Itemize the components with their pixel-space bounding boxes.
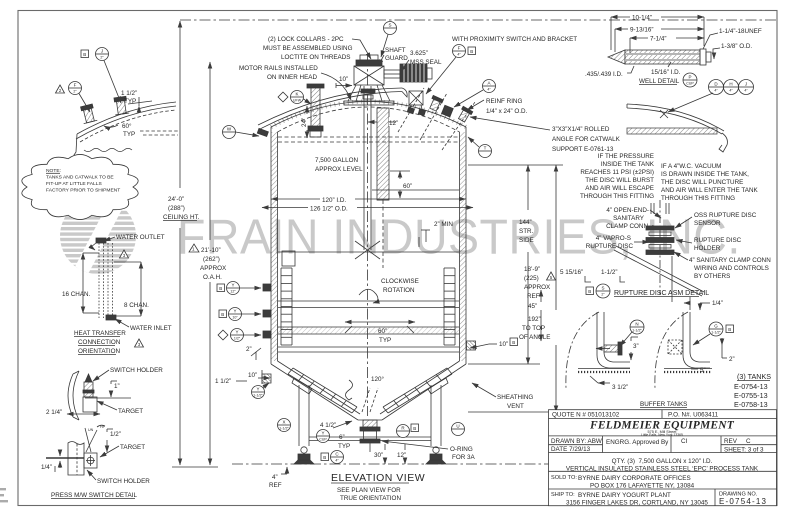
svg-text:WITH PROXIMITY SWITCH AND BRAC: WITH PROXIMITY SWITCH AND BRACKET — [452, 36, 577, 43]
svg-text:E-0755-13: E-0755-13 — [734, 391, 768, 400]
svg-text:18’-9”: 18’-9” — [524, 266, 540, 273]
svg-text:Y: Y — [235, 330, 238, 335]
svg-text:FACTORY PRIOR TO SHIPMENT: FACTORY PRIOR TO SHIPMENT — [46, 188, 120, 194]
svg-text:DRAWN BY: ABW: DRAWN BY: ABW — [551, 438, 602, 445]
svg-text:THE DISC WILL BURST: THE DISC WILL BURST — [585, 177, 654, 184]
svg-text:B: B — [470, 49, 473, 54]
svg-text:X: X — [282, 420, 285, 425]
svg-text:CLOCKWISE: CLOCKWISE — [381, 278, 419, 285]
svg-text:Y: Y — [231, 283, 234, 288]
svg-text:IF A 4”W.C. VACUUM: IF A 4”W.C. VACUUM — [661, 163, 721, 170]
svg-text:24’-0”: 24’-0” — [168, 196, 184, 203]
svg-text:10”: 10” — [339, 76, 348, 83]
svg-text:7,500 GALLON: 7,500 GALLON — [315, 157, 359, 164]
svg-text:B: B — [323, 455, 326, 460]
svg-text:120°: 120° — [371, 375, 385, 383]
svg-text:3”: 3” — [633, 343, 639, 350]
svg-text:3”X3”X1/4” ROLLED: 3”X3”X1/4” ROLLED — [552, 126, 610, 133]
svg-text:B: B — [413, 426, 416, 431]
svg-text:Little Falls, New York 13365: Little Falls, New York 13365 — [641, 433, 683, 437]
svg-text:60°: 60° — [122, 122, 132, 130]
svg-text:60”: 60” — [403, 183, 412, 190]
svg-text:2”: 2” — [729, 356, 735, 363]
svg-text:15/16” I.D.: 15/16” I.D. — [651, 69, 681, 76]
svg-text:RUPTURE DISC ASM DETAIL: RUPTURE DISC ASM DETAIL — [614, 290, 709, 297]
svg-text:E-0754-13: E-0754-13 — [719, 497, 767, 506]
svg-text:B: B — [221, 312, 224, 317]
svg-text:1”: 1” — [114, 383, 120, 390]
svg-text:T: T — [484, 146, 487, 151]
svg-text:B: B — [512, 340, 515, 345]
svg-text:SENSOR: SENSOR — [694, 220, 721, 227]
svg-text:SEE PLAN VIEW FOR: SEE PLAN VIEW FOR — [337, 487, 401, 494]
svg-text:144”: 144” — [519, 219, 532, 226]
svg-text:TANKS AND CATWALK TO BE: TANKS AND CATWALK TO BE — [46, 175, 114, 181]
svg-text:SHEATHING: SHEATHING — [497, 394, 533, 401]
svg-text:F: F — [458, 46, 461, 51]
svg-text:6”: 6” — [339, 434, 345, 441]
svg-text:1/2”: 1/2” — [234, 337, 241, 341]
svg-text:Y: Y — [233, 309, 236, 314]
svg-text:5”: 5” — [700, 367, 706, 374]
svg-text:.435/.439 I.D.: .435/.439 I.D. — [585, 71, 623, 78]
svg-text:AND AIR WILL ESCAPE: AND AIR WILL ESCAPE — [585, 185, 654, 192]
svg-text:U: U — [456, 424, 459, 429]
svg-text:ON INNER HEAD: ON INNER HEAD — [267, 74, 317, 81]
svg-text:1-1/2”: 1-1/2” — [711, 331, 721, 335]
svg-text:A: A — [487, 81, 490, 86]
svg-text:B: B — [728, 327, 731, 332]
svg-text:J: J — [745, 82, 747, 87]
svg-text:24”: 24” — [301, 118, 308, 127]
svg-text:H: H — [729, 82, 732, 87]
svg-text:THROUGH THIS FITTING: THROUGH THIS FITTING — [661, 195, 735, 202]
svg-text:APPROX: APPROX — [200, 265, 227, 272]
svg-text:SHIP TO:: SHIP TO: — [551, 492, 575, 498]
svg-text:HOLDER: HOLDER — [694, 245, 721, 252]
svg-text:APPROX LEVEL: APPROX LEVEL — [315, 166, 363, 173]
svg-text:MOTOR RAILS INSTALLED: MOTOR RAILS INSTALLED — [239, 65, 318, 72]
svg-text:CONNECTION: CONNECTION — [78, 339, 121, 346]
svg-text:LOCTITE ON THREADS: LOCTITE ON THREADS — [281, 54, 351, 61]
svg-text:(225): (225) — [524, 275, 539, 282]
svg-text:STR.: STR. — [519, 228, 534, 235]
svg-text:P: P — [688, 75, 691, 80]
svg-text:ROTATION: ROTATION — [383, 287, 415, 294]
svg-text:(288”): (288”) — [168, 205, 185, 212]
svg-text:FIT-UP AT LITTLE FALLS: FIT-UP AT LITTLE FALLS — [46, 181, 102, 187]
svg-text:ELEVATION VIEW: ELEVATION VIEW — [331, 472, 425, 484]
svg-text:TO TOP: TO TOP — [522, 325, 545, 332]
svg-text:1 1/2”: 1 1/2” — [215, 378, 231, 385]
svg-text:10”: 10” — [248, 372, 257, 379]
svg-text:G: G — [714, 324, 718, 329]
svg-text:TARGET: TARGET — [120, 444, 145, 451]
svg-text:CI: CI — [681, 438, 688, 445]
svg-text:ENGRG. Approved By: ENGRG. Approved By — [606, 439, 669, 446]
svg-text:SIDE: SIDE — [519, 237, 534, 244]
svg-text:MUST BE ASSEMBLED USING: MUST BE ASSEMBLED USING — [263, 45, 353, 52]
svg-text:S: S — [601, 286, 604, 291]
svg-text:1-1/2”: 1-1/2” — [632, 329, 642, 333]
svg-text:8 CHAN.: 8 CHAN. — [124, 302, 149, 309]
svg-text:APPROX: APPROX — [524, 284, 551, 291]
svg-text:AND AIR WILL ENTER THE TANK: AND AIR WILL ENTER THE TANK — [661, 187, 758, 194]
svg-text:1-1/2”: 1-1/2” — [279, 427, 289, 431]
svg-text:SOLD TO:: SOLD TO: — [551, 475, 577, 481]
svg-text:1/4” x 24” O.D.: 1/4” x 24” O.D. — [486, 108, 528, 115]
svg-text:3156 FINGER LAKES DR, CORTLAND: 3156 FINGER LAKES DR, CORTLAND, NY 13045 — [566, 500, 708, 507]
svg-text:4” VAPRO-S: 4” VAPRO-S — [596, 235, 631, 242]
svg-text:5 15/16”: 5 15/16” — [560, 269, 583, 276]
svg-text:REF: REF — [269, 482, 282, 489]
svg-text:CLAMP CONN: CLAMP CONN — [606, 223, 648, 230]
svg-text:45”: 45” — [528, 303, 537, 310]
svg-text:PRESS M/W SWITCH DETAIL: PRESS M/W SWITCH DETAIL — [51, 492, 137, 499]
svg-text:(2) LOCK COLLARS - 2PC: (2) LOCK COLLARS - 2PC — [268, 36, 344, 43]
svg-text:REV: REV — [724, 438, 738, 445]
svg-text:C: C — [746, 438, 751, 445]
svg-text:UN: UN — [88, 428, 94, 432]
svg-text:F: F — [74, 83, 77, 88]
svg-text:BUFFER TANKS: BUFFER TANKS — [640, 401, 687, 408]
svg-text:INSIDE THE TANK: INSIDE THE TANK — [601, 161, 655, 168]
svg-text:(262”): (262”) — [203, 256, 220, 263]
svg-text:E-0754-13: E-0754-13 — [734, 382, 768, 391]
svg-text:1-1/2”: 1-1/2” — [253, 394, 263, 398]
svg-text:HEAT TRANSFER: HEAT TRANSFER — [74, 330, 126, 337]
svg-text:BYRNE DAIRY CORPORATE OFFICES: BYRNE DAIRY CORPORATE OFFICES — [578, 475, 691, 482]
svg-text:WELL DETAIL: WELL DETAIL — [639, 78, 680, 85]
svg-text:PO BOX 176 LAFAYETTE NY, 13084: PO BOX 176 LAFAYETTE NY, 13084 — [590, 483, 695, 490]
svg-text:O.A.H.: O.A.H. — [203, 274, 222, 281]
svg-text:TYP: TYP — [123, 131, 135, 138]
svg-text:SWITCH HOLDER: SWITCH HOLDER — [97, 478, 150, 485]
svg-text:SWITCH HOLDER: SWITCH HOLDER — [110, 367, 163, 374]
svg-text:126 1/2” O.D.: 126 1/2” O.D. — [310, 206, 348, 213]
svg-text:REACHES 11 PSI (±2PSI): REACHES 11 PSI (±2PSI) — [580, 169, 654, 176]
svg-text:3 1/2”: 3 1/2” — [612, 384, 628, 391]
svg-text:O-RING: O-RING — [450, 446, 473, 453]
svg-text:12”: 12” — [397, 452, 406, 459]
svg-text:GUARD: GUARD — [385, 55, 408, 62]
svg-text:BY OTHERS: BY OTHERS — [694, 273, 730, 280]
svg-text:4” OPEN-END-: 4” OPEN-END- — [606, 207, 649, 214]
svg-text:21’-10”: 21’-10” — [201, 247, 221, 254]
svg-text:WIRING AND CONTROLS: WIRING AND CONTROLS — [694, 265, 769, 272]
svg-text:4”: 4” — [272, 474, 278, 481]
svg-text:J: J — [101, 49, 103, 54]
svg-text:SUPPORT E-0761-13: SUPPORT E-0761-13 — [552, 146, 614, 153]
svg-text:SANITARY: SANITARY — [613, 215, 645, 222]
svg-text:1/4”: 1/4” — [712, 300, 723, 307]
svg-text:10-1/4”: 10-1/4” — [632, 15, 652, 22]
svg-text:192”: 192” — [528, 316, 541, 323]
svg-text:4” SANITARY CLAMP CONN: 4” SANITARY CLAMP CONN — [689, 257, 771, 264]
svg-text:B: B — [588, 289, 591, 294]
svg-text:OF ANGLE: OF ANGLE — [519, 334, 551, 341]
svg-text:12”: 12” — [389, 120, 398, 127]
svg-text:DATE 7/29/13: DATE 7/29/13 — [551, 446, 591, 453]
svg-text:BYRNE DAIRY YOGURT PLANT: BYRNE DAIRY YOGURT PLANT — [578, 492, 671, 499]
svg-text:30”: 30” — [374, 452, 383, 459]
svg-text:(3) TANKS: (3) TANKS — [737, 372, 771, 381]
svg-text:3.625”: 3.625” — [410, 50, 428, 57]
svg-text:VERTICAL INSULATED STAINLESS S: VERTICAL INSULATED STAINLESS STEEL ‘EPC’… — [566, 466, 759, 473]
svg-text:IF THE PRESSURE: IF THE PRESSURE — [598, 153, 654, 160]
svg-text:P.O. N#. U063411: P.O. N#. U063411 — [668, 412, 719, 419]
svg-text:QTY. (3) 7,500 GALLON x 120”: QTY. (3) 7,500 GALLON x 120” I.D. — [612, 458, 713, 465]
svg-text:TYP: TYP — [379, 337, 391, 344]
svg-text:MSS SEAL: MSS SEAL — [410, 59, 442, 66]
svg-text:12”: 12” — [230, 290, 236, 294]
svg-text:E-0758-13: E-0758-13 — [734, 400, 768, 409]
svg-text:1-1/4”-18UNEF: 1-1/4”-18UNEF — [719, 28, 762, 35]
svg-text:1/4”: 1/4” — [41, 464, 52, 471]
svg-text:TYP: TYP — [338, 443, 350, 450]
svg-text:TRUE ORIENTATION: TRUE ORIENTATION — [340, 495, 401, 502]
svg-text:7-1/4”: 7-1/4” — [650, 36, 666, 43]
svg-text:B: B — [219, 286, 222, 291]
svg-text:1 1/2”: 1 1/2” — [121, 90, 137, 97]
svg-text:TARGET: TARGET — [118, 408, 143, 415]
svg-text:IS DRAWN INSIDE THE TANK,: IS DRAWN INSIDE THE TANK, — [661, 171, 749, 178]
svg-text:10”: 10” — [499, 341, 508, 348]
svg-text:120” I.D.: 120” I.D. — [322, 197, 346, 204]
svg-text:60”: 60” — [378, 328, 387, 335]
svg-text:CUP: CUP — [686, 82, 694, 86]
svg-text:Y: Y — [256, 387, 259, 392]
svg-text:QUOTE N # 051013102: QUOTE N # 051013102 — [552, 412, 620, 419]
svg-text:2” MIN: 2” MIN — [434, 221, 453, 228]
svg-text:CUP: CUP — [319, 438, 327, 442]
svg-text:UFW: UFW — [293, 99, 302, 103]
svg-text:ORIENTATION: ORIENTATION — [78, 348, 121, 355]
svg-text:1-1/2”: 1-1/2” — [601, 269, 617, 276]
svg-text:FOR 3A: FOR 3A — [452, 454, 476, 461]
svg-text:SHEET: 3 of 3: SHEET: 3 of 3 — [724, 447, 764, 454]
svg-text:THROUGH THIS FITTING: THROUGH THIS FITTING — [580, 193, 654, 200]
svg-text:VENT: VENT — [507, 403, 524, 410]
svg-text:WATER INLET: WATER INLET — [130, 325, 172, 332]
svg-text:10”: 10” — [232, 316, 238, 320]
svg-text:REINF RING: REINF RING — [486, 98, 522, 105]
svg-text:S: S — [388, 23, 391, 28]
svg-text:1-3/8” O.D.: 1-3/8” O.D. — [721, 43, 752, 50]
svg-text:OSS RUPTURE DISC: OSS RUPTURE DISC — [694, 212, 757, 219]
svg-text:B: B — [83, 52, 86, 57]
svg-text:RUPTURE DISC: RUPTURE DISC — [586, 243, 634, 250]
svg-text:CEILING HT.: CEILING HT. — [163, 214, 200, 221]
svg-text:Y: Y — [321, 431, 324, 436]
svg-text:N: N — [635, 322, 638, 327]
svg-text:K: K — [295, 92, 298, 97]
svg-text:REF: REF — [527, 293, 540, 300]
svg-text:RUPTURE DISC: RUPTURE DISC — [694, 237, 742, 244]
svg-text:9-13/16”: 9-13/16” — [630, 27, 653, 34]
svg-text:1/2”: 1/2” — [110, 431, 121, 438]
svg-text:2 1/4”: 2 1/4” — [46, 409, 62, 416]
svg-text:ANGLE FOR CATWALK: ANGLE FOR CATWALK — [552, 136, 621, 143]
svg-text:16 CHAN.: 16 CHAN. — [62, 291, 91, 298]
svg-text:2”: 2” — [246, 346, 252, 353]
svg-text:THE DISC WILL PUNCTURE: THE DISC WILL PUNCTURE — [661, 179, 743, 186]
svg-text:SHAFT: SHAFT — [385, 47, 406, 54]
svg-text:WATER OUTLET: WATER OUTLET — [116, 234, 165, 241]
